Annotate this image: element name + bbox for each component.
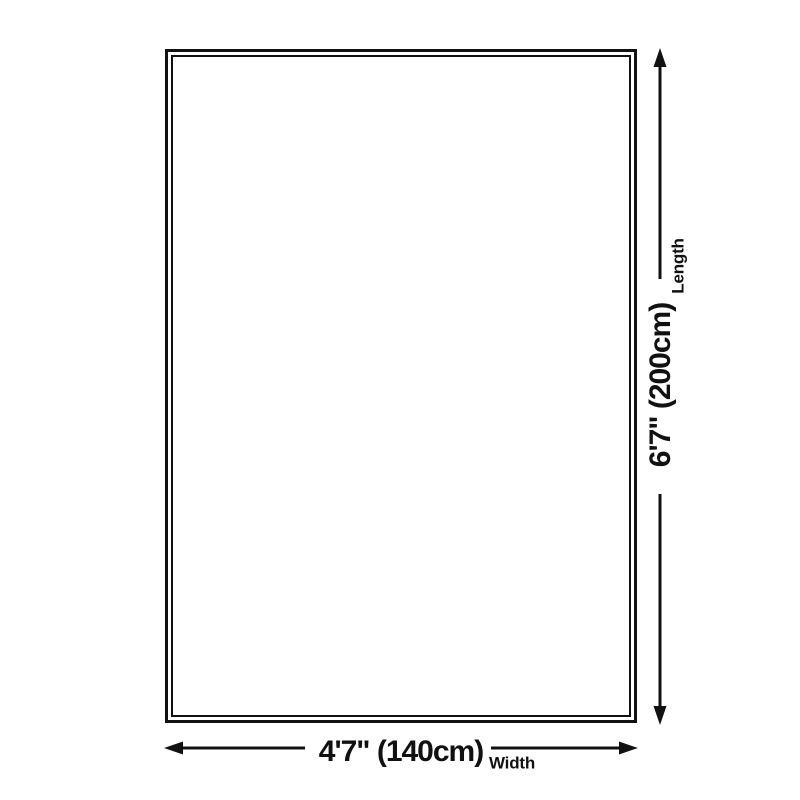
arrow-left-head-icon bbox=[164, 742, 183, 755]
dimension-diagram: 6'7" (200cm) Length 4'7" (140cm) Width bbox=[0, 0, 800, 800]
arrow-up-head-icon bbox=[654, 48, 667, 67]
length-label: Length bbox=[670, 238, 687, 293]
rug-outline bbox=[165, 49, 637, 723]
arrow-right-head-icon bbox=[619, 742, 638, 755]
width-value: 4'7" (140cm) bbox=[319, 737, 483, 767]
rug-inner-outline bbox=[171, 55, 631, 717]
width-label: Width bbox=[489, 755, 535, 772]
arrow-down-head-icon bbox=[654, 706, 667, 725]
length-value: 6'7" (200cm) bbox=[646, 303, 676, 467]
